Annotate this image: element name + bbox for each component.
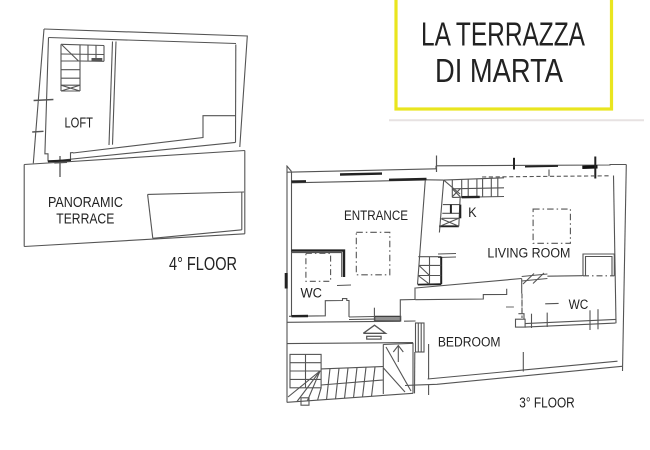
svg-text:3° FLOOR: 3° FLOOR	[519, 395, 575, 412]
svg-text:WC: WC	[569, 297, 589, 312]
svg-text:K: K	[468, 205, 477, 220]
svg-text:TERRACE: TERRACE	[56, 212, 114, 228]
svg-text:PANORAMIC: PANORAMIC	[48, 195, 123, 211]
svg-text:BEDROOM: BEDROOM	[438, 335, 501, 350]
svg-text:LIVING ROOM: LIVING ROOM	[487, 246, 570, 261]
svg-text:WC: WC	[300, 286, 322, 301]
svg-text:DI MARTA: DI MARTA	[435, 52, 563, 89]
svg-text:LA TERRAZZA: LA TERRAZZA	[421, 16, 585, 53]
svg-text:4° FLOOR: 4° FLOOR	[169, 253, 237, 274]
svg-text:LOFT: LOFT	[64, 116, 93, 132]
svg-text:ENTRANCE: ENTRANCE	[344, 208, 408, 223]
